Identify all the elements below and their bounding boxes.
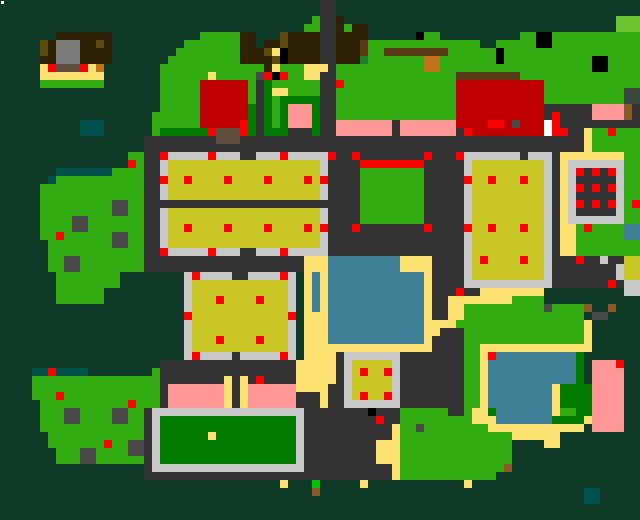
game-map-viewport [0,0,640,520]
pixel-world-map-canvas[interactable] [0,0,640,520]
